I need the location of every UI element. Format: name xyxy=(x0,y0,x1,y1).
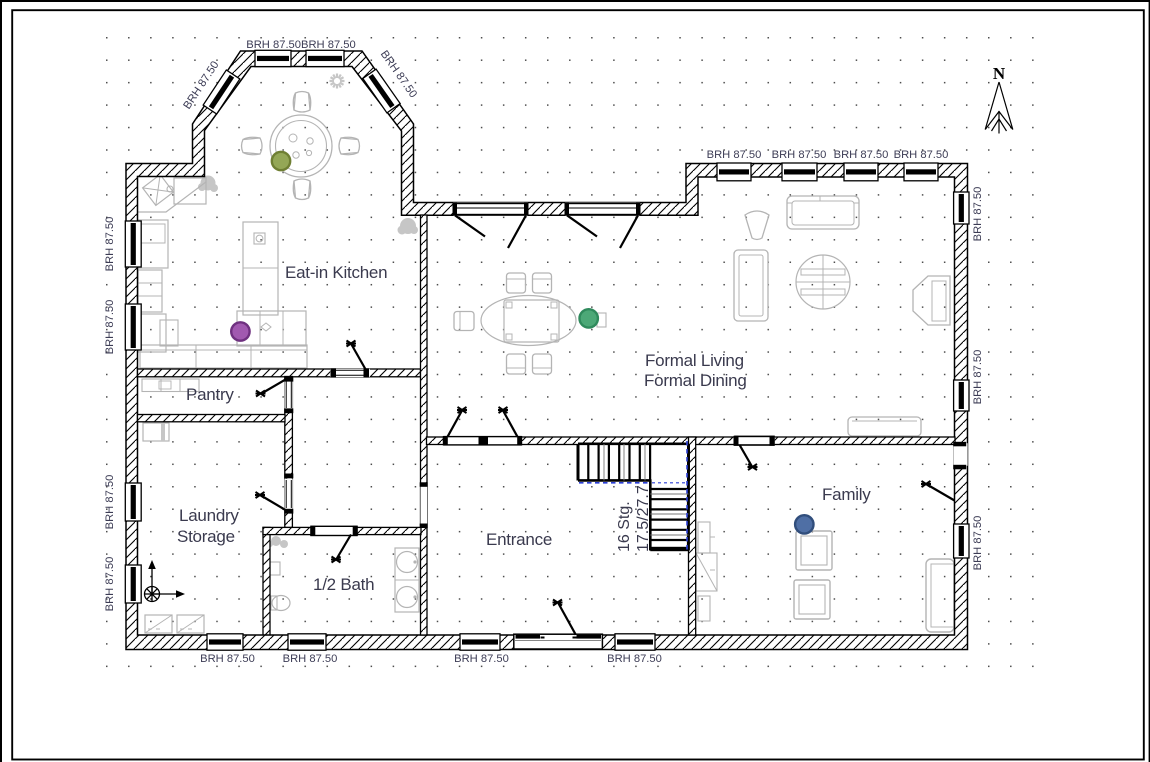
svg-text:N: N xyxy=(993,64,1006,83)
svg-text:Entrance: Entrance xyxy=(486,530,552,549)
svg-text:BRH 87.50: BRH 87.50 xyxy=(894,149,949,161)
svg-text:BRH 87.50: BRH 87.50 xyxy=(972,516,984,571)
svg-text:BRH 87.50BRH 87.50: BRH 87.50BRH 87.50 xyxy=(246,39,355,51)
svg-text:BRH 87.50: BRH 87.50 xyxy=(104,475,116,530)
svg-text:Family: Family xyxy=(822,485,871,504)
svg-text:17.5/27.7: 17.5/27.7 xyxy=(635,485,652,552)
svg-text:BRH 87.50: BRH 87.50 xyxy=(772,149,827,161)
svg-text:Formal Dining: Formal Dining xyxy=(644,371,747,390)
svg-text:BRH 87.50: BRH 87.50 xyxy=(104,557,116,612)
svg-text:16 Stg.: 16 Stg. xyxy=(616,501,633,552)
svg-text:BRH 87.50: BRH 87.50 xyxy=(454,653,509,665)
svg-text:BRH 87.50: BRH 87.50 xyxy=(283,653,338,665)
svg-text:BRH 87.50: BRH 87.50 xyxy=(607,653,662,665)
svg-text:1/2 Bath: 1/2 Bath xyxy=(313,575,374,594)
svg-text:BRH 87.50: BRH 87.50 xyxy=(104,300,116,355)
svg-text:BRH 87.50: BRH 87.50 xyxy=(200,653,255,665)
svg-text:Formal Living: Formal Living xyxy=(645,351,744,370)
svg-text:Eat-in Kitchen: Eat-in Kitchen xyxy=(285,263,387,282)
svg-text:BRH 87.50: BRH 87.50 xyxy=(972,350,984,405)
svg-text:Laundry: Laundry xyxy=(179,506,239,525)
svg-text:Pantry: Pantry xyxy=(186,385,234,404)
svg-text:BRH 87.50: BRH 87.50 xyxy=(707,149,762,161)
svg-text:BRH 87.50: BRH 87.50 xyxy=(834,149,889,161)
svg-text:BRH 87.50: BRH 87.50 xyxy=(972,187,984,242)
svg-text:Storage: Storage xyxy=(177,527,235,546)
svg-text:BRH 87.50: BRH 87.50 xyxy=(104,217,116,272)
